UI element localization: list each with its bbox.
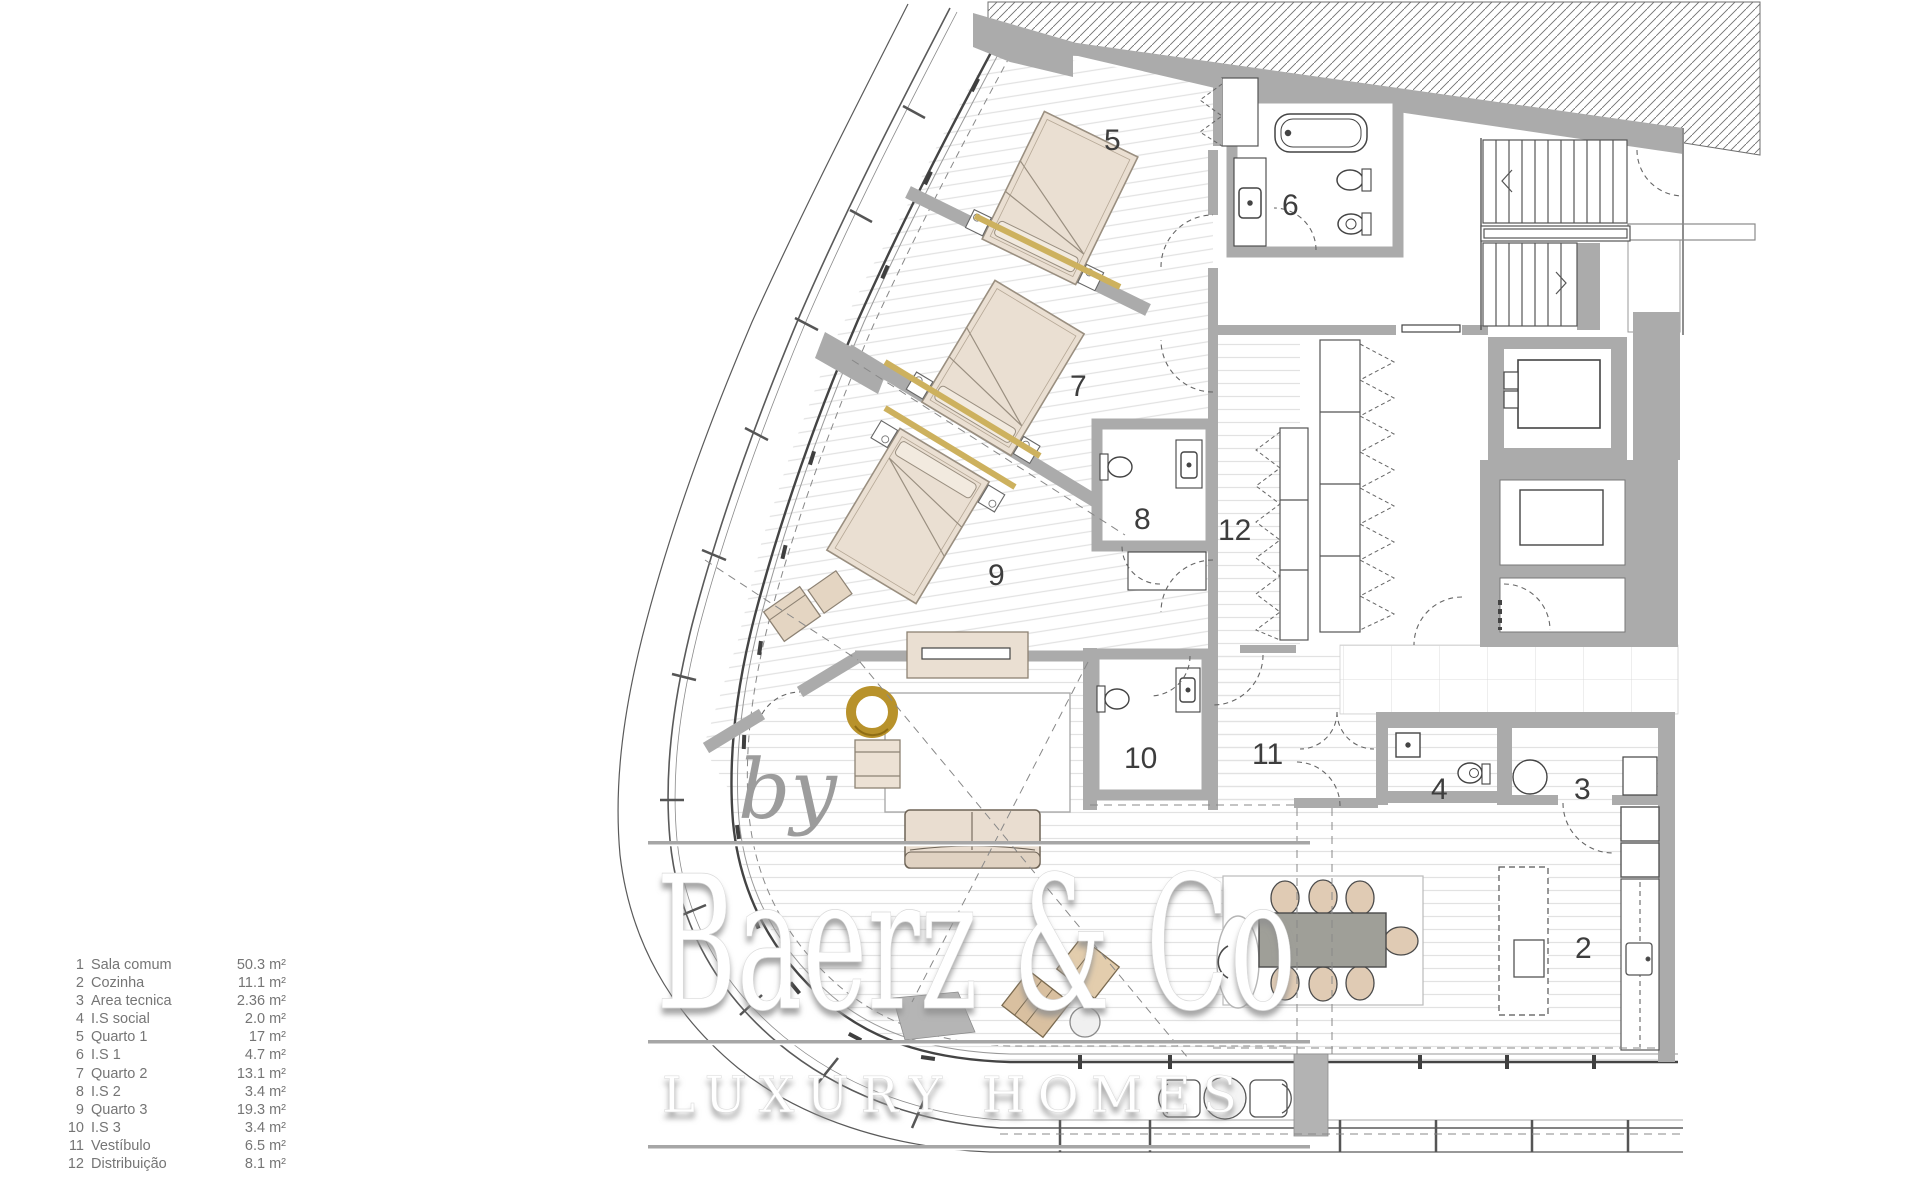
legend-area: 2.36 m² [224,992,286,1010]
watermark-by: by [738,743,838,838]
water-heater [1513,760,1547,794]
legend-label: Vestíbulo [91,1137,224,1155]
legend-row: 4I.S social2.0 m² [58,1010,286,1028]
wall-east [1658,712,1675,1062]
closet-fold-doors-right [1360,344,1394,630]
legend-label: Quarto 3 [91,1101,224,1119]
legend-num: 8 [58,1083,84,1101]
legend-row: 7Quarto 213.1 m² [58,1065,286,1083]
legend-num: 9 [58,1101,84,1119]
room-label-quarto-1: 5 [1104,124,1121,157]
legend-num: 6 [58,1046,84,1064]
wall-room3-south-b [1612,795,1664,805]
toilet-1 [1337,170,1363,190]
legend-label: Area tecnica [91,992,224,1010]
legend-num: 12 [58,1155,84,1173]
wall-vest-south [1294,798,1378,808]
room-label-cozinha: 2 [1575,932,1592,965]
legend-num: 11 [58,1137,84,1155]
legend-num: 5 [58,1028,84,1046]
wall-room3-south-a [1512,795,1558,805]
room-label-distribuicao: 12 [1218,514,1251,547]
legend-row: 3Area tecnica2.36 m² [58,992,286,1010]
legend-row: 6I.S 14.7 m² [58,1046,286,1064]
elevator [1504,349,1611,448]
legend-label: I.S 2 [91,1083,224,1101]
legend-row: 12Distribuição8.1 m² [58,1155,286,1173]
legend-row: 10I.S 33.4 m² [58,1119,286,1137]
legend-area: 3.4 m² [224,1083,286,1101]
floorplan-page: 5 6 7 8 9 10 11 12 4 3 2 by Baerz & Co L… [0,0,1914,1198]
tall-unit-b [1621,843,1659,877]
legend-row: 5Quarto 117 m² [58,1028,286,1046]
legend-label: Quarto 1 [91,1028,224,1046]
toilet-2 [1108,457,1132,477]
legend-area: 19.3 m² [224,1101,286,1119]
stair-mid-wall [1577,243,1600,330]
sliding-door-leaf [1402,325,1460,332]
room-label-is-2: 8 [1134,503,1151,536]
legend-area: 6.5 m² [224,1137,286,1155]
legend-num: 3 [58,992,84,1010]
legend-label: Quarto 2 [91,1065,224,1083]
legend-area: 50.3 m² [224,956,286,974]
legend-num: 7 [58,1065,84,1083]
living-rug [885,693,1070,812]
legend-area: 13.1 m² [224,1065,286,1083]
legend-area: 11.1 m² [224,974,286,992]
room-label-is-1: 6 [1282,189,1299,222]
legend-num: 2 [58,974,84,992]
wall-vest-north [1240,645,1296,653]
toilet-3 [1105,689,1129,709]
legend-label: Distribuição [91,1155,224,1173]
service-rooms [1500,480,1625,632]
watermark-rule-2 [648,1040,1310,1045]
floor-lamp [851,691,893,733]
floorplan-drawing: 5 6 7 8 9 10 11 12 4 3 2 by Baerz & Co L… [0,0,1914,1198]
door-lobby [1414,597,1462,645]
elevator-door-b [1504,391,1518,408]
lobby-tiles [1340,645,1678,714]
bath-3-west-wall [1083,648,1097,810]
legend-num: 4 [58,1010,84,1028]
bistro-chair-right [1250,1080,1287,1117]
room-legend: 1Sala comum50.3 m² 2Cozinha11.1 m² 3Area… [58,956,286,1173]
room-label-is-social: 4 [1431,773,1448,806]
legend-num: 10 [58,1119,84,1137]
room-label-quarto-2: 7 [1070,370,1087,403]
room-label-area-tecnica: 3 [1574,773,1591,806]
armchair-side [855,740,900,788]
tech-cabinet [1623,757,1657,795]
stair-lower-flight [1483,243,1577,326]
legend-area: 3.4 m² [224,1119,286,1137]
elevator-east-wall [1633,312,1680,460]
legend-row: 11Vestíbulo6.5 m² [58,1137,286,1155]
tv [922,648,1010,659]
watermark-rule-3 [648,1145,1310,1150]
legend-num: 1 [58,956,84,974]
island-sink [1514,940,1544,977]
legend-row: 1Sala comum50.3 m² [58,956,286,974]
terrace-pillar [1294,1054,1328,1136]
legend-label: Sala comum [91,956,224,974]
wardrobe-q1 [1222,78,1258,146]
room-label-is-3: 10 [1124,742,1157,775]
landing-extension [1628,224,1755,240]
legend-row: 9Quarto 319.3 m² [58,1101,286,1119]
stair-landing-inner [1484,229,1627,238]
legend-area: 2.0 m² [224,1010,286,1028]
room-label-quarto-3: 9 [988,559,1005,592]
wall-rooms43-north [1376,712,1673,728]
legend-row: 2Cozinha11.1 m² [58,974,286,992]
legend-row: 8I.S 23.4 m² [58,1083,286,1101]
legend-label: I.S 3 [91,1119,224,1137]
watermark-brand: Baerz & Co [656,836,1296,1052]
door-common-stair [1637,150,1683,196]
bath-2-niche [1128,552,1206,590]
watermark-tagline: LUXURY HOMES [662,1066,1237,1124]
legend-label: I.S social [91,1010,224,1028]
legend-area: 4.7 m² [224,1046,286,1064]
legend-label: I.S 1 [91,1046,224,1064]
tall-unit-a [1621,807,1659,841]
legend-area: 8.1 m² [224,1155,286,1173]
room-label-vestibulo: 11 [1252,738,1283,771]
legend-area: 17 m² [224,1028,286,1046]
legend-label: Cozinha [91,974,224,992]
elevator-door-a [1504,372,1518,389]
